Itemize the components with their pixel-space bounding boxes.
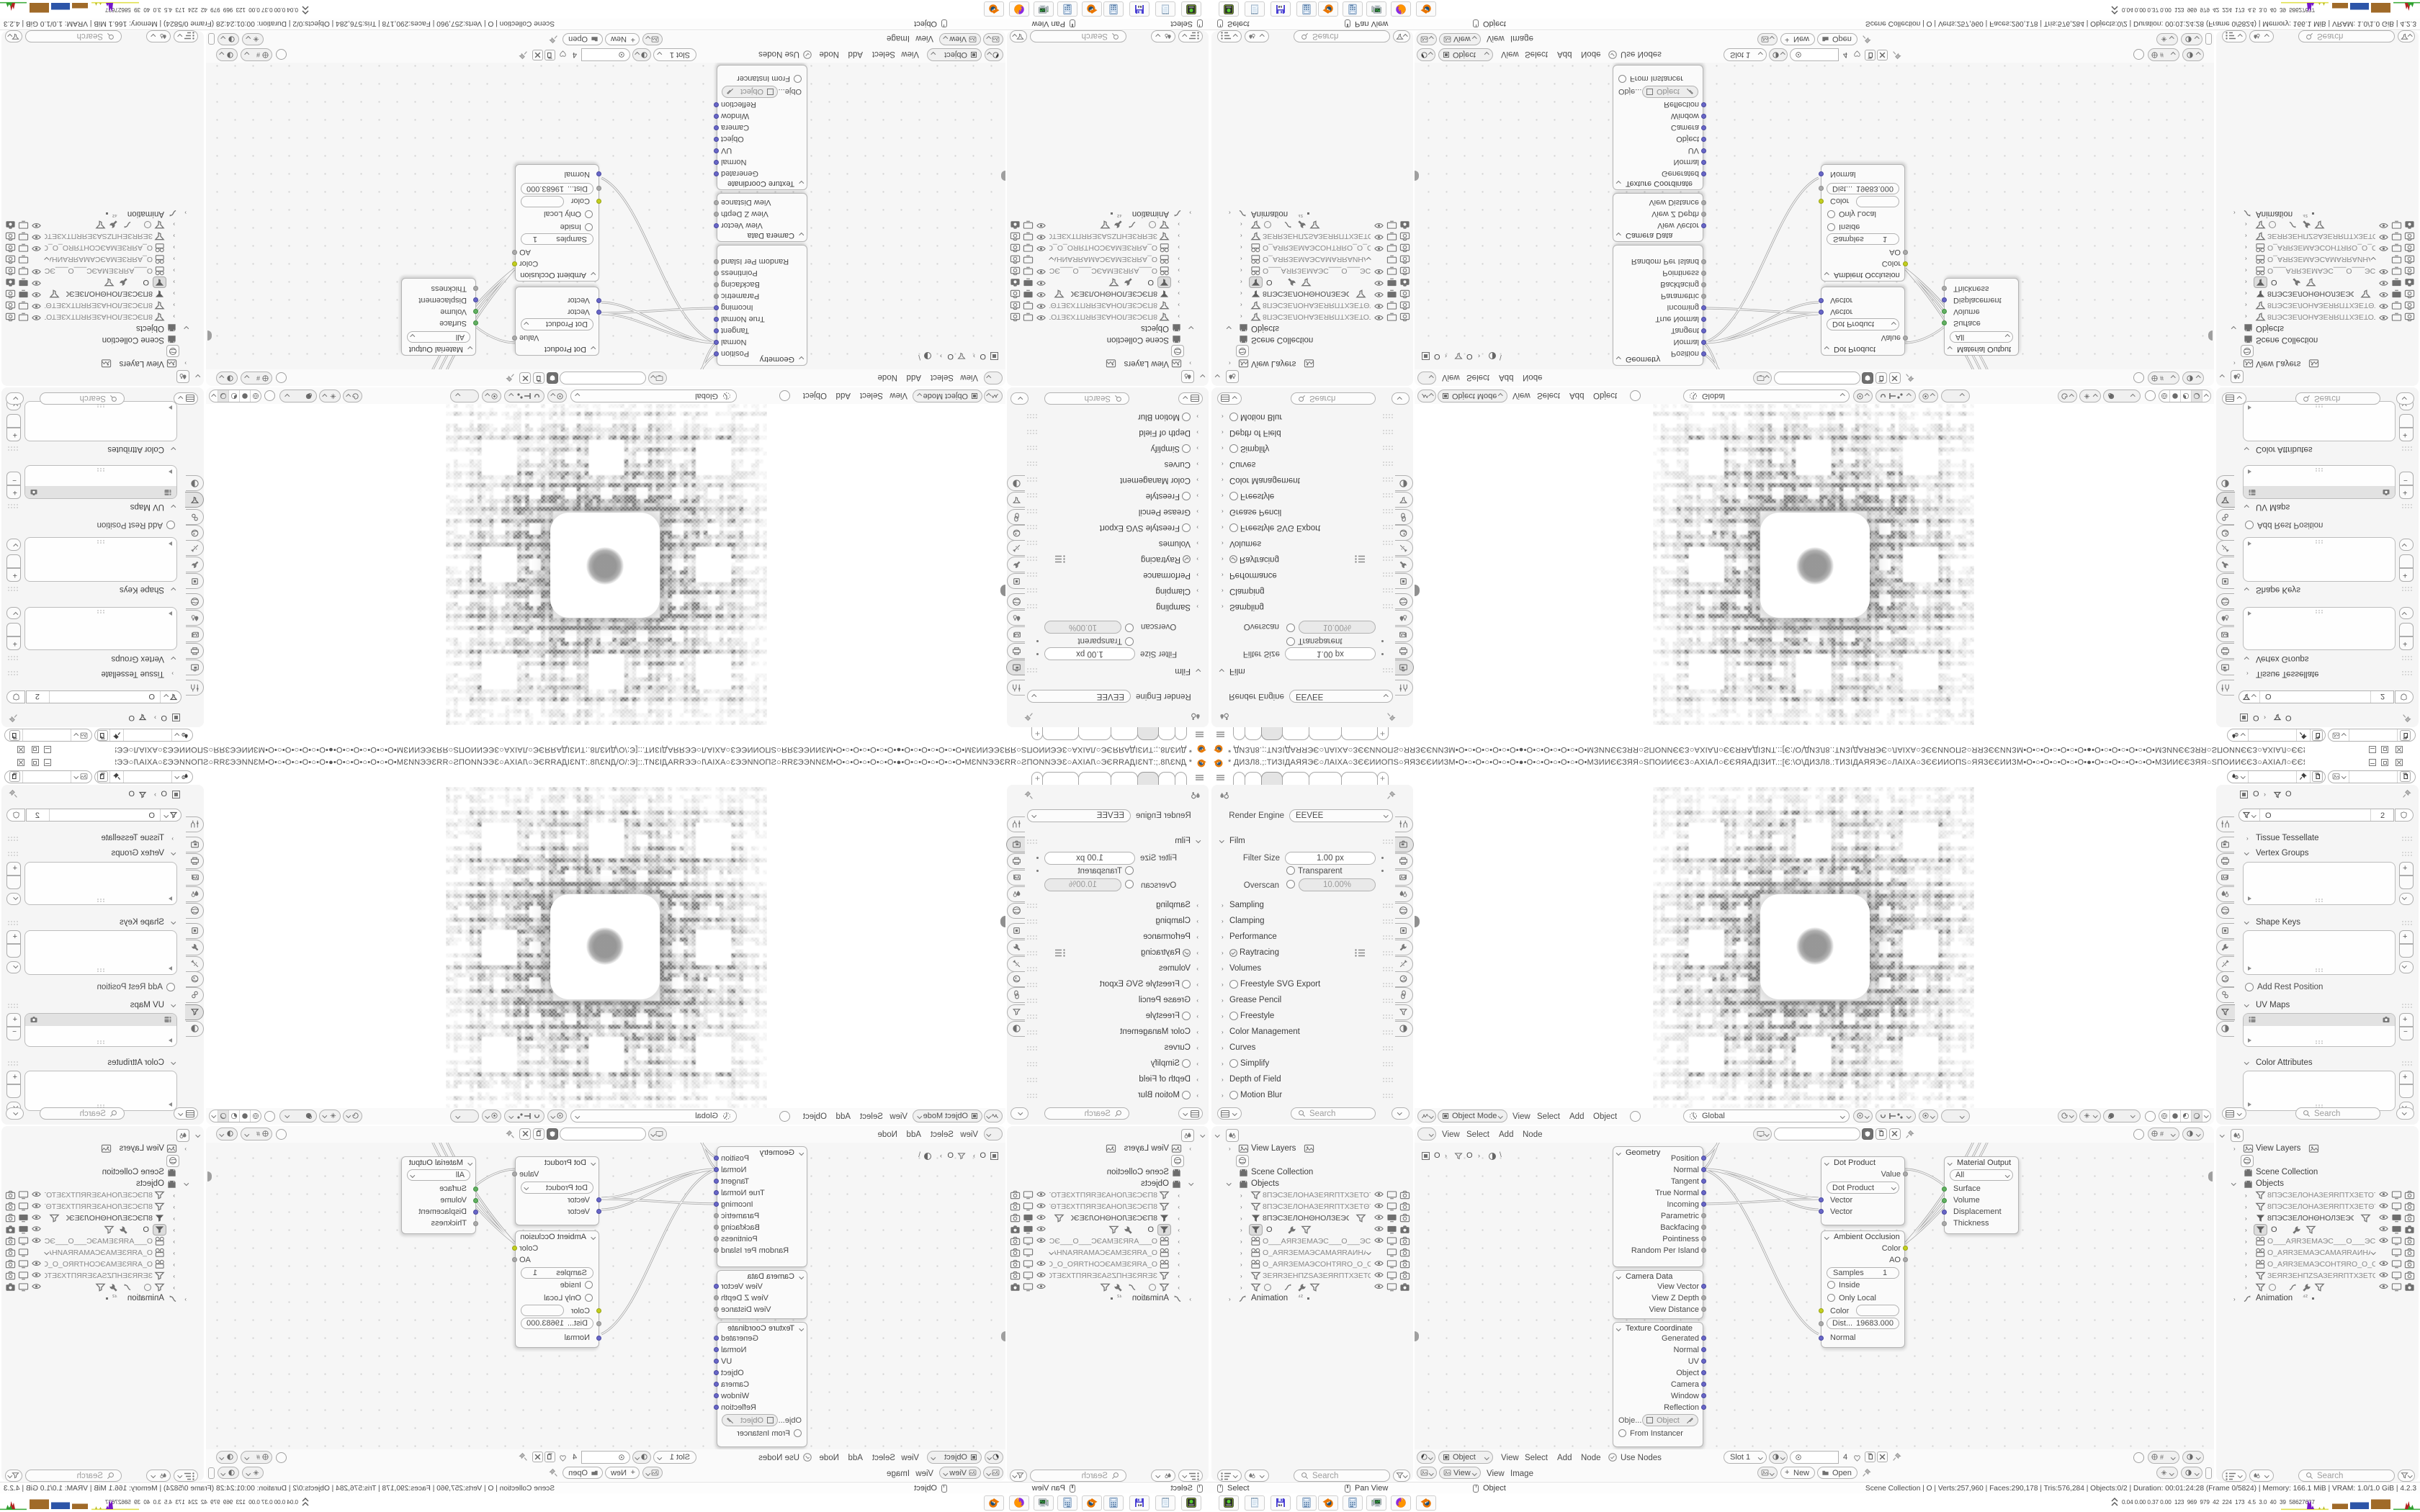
svg-text:64: 64 — [1278, 1503, 1283, 1508]
svg-text:64: 64 — [1138, 4, 1142, 9]
svg-text:64: 64 — [1278, 4, 1283, 9]
svg-text:64: 64 — [1138, 1503, 1142, 1508]
